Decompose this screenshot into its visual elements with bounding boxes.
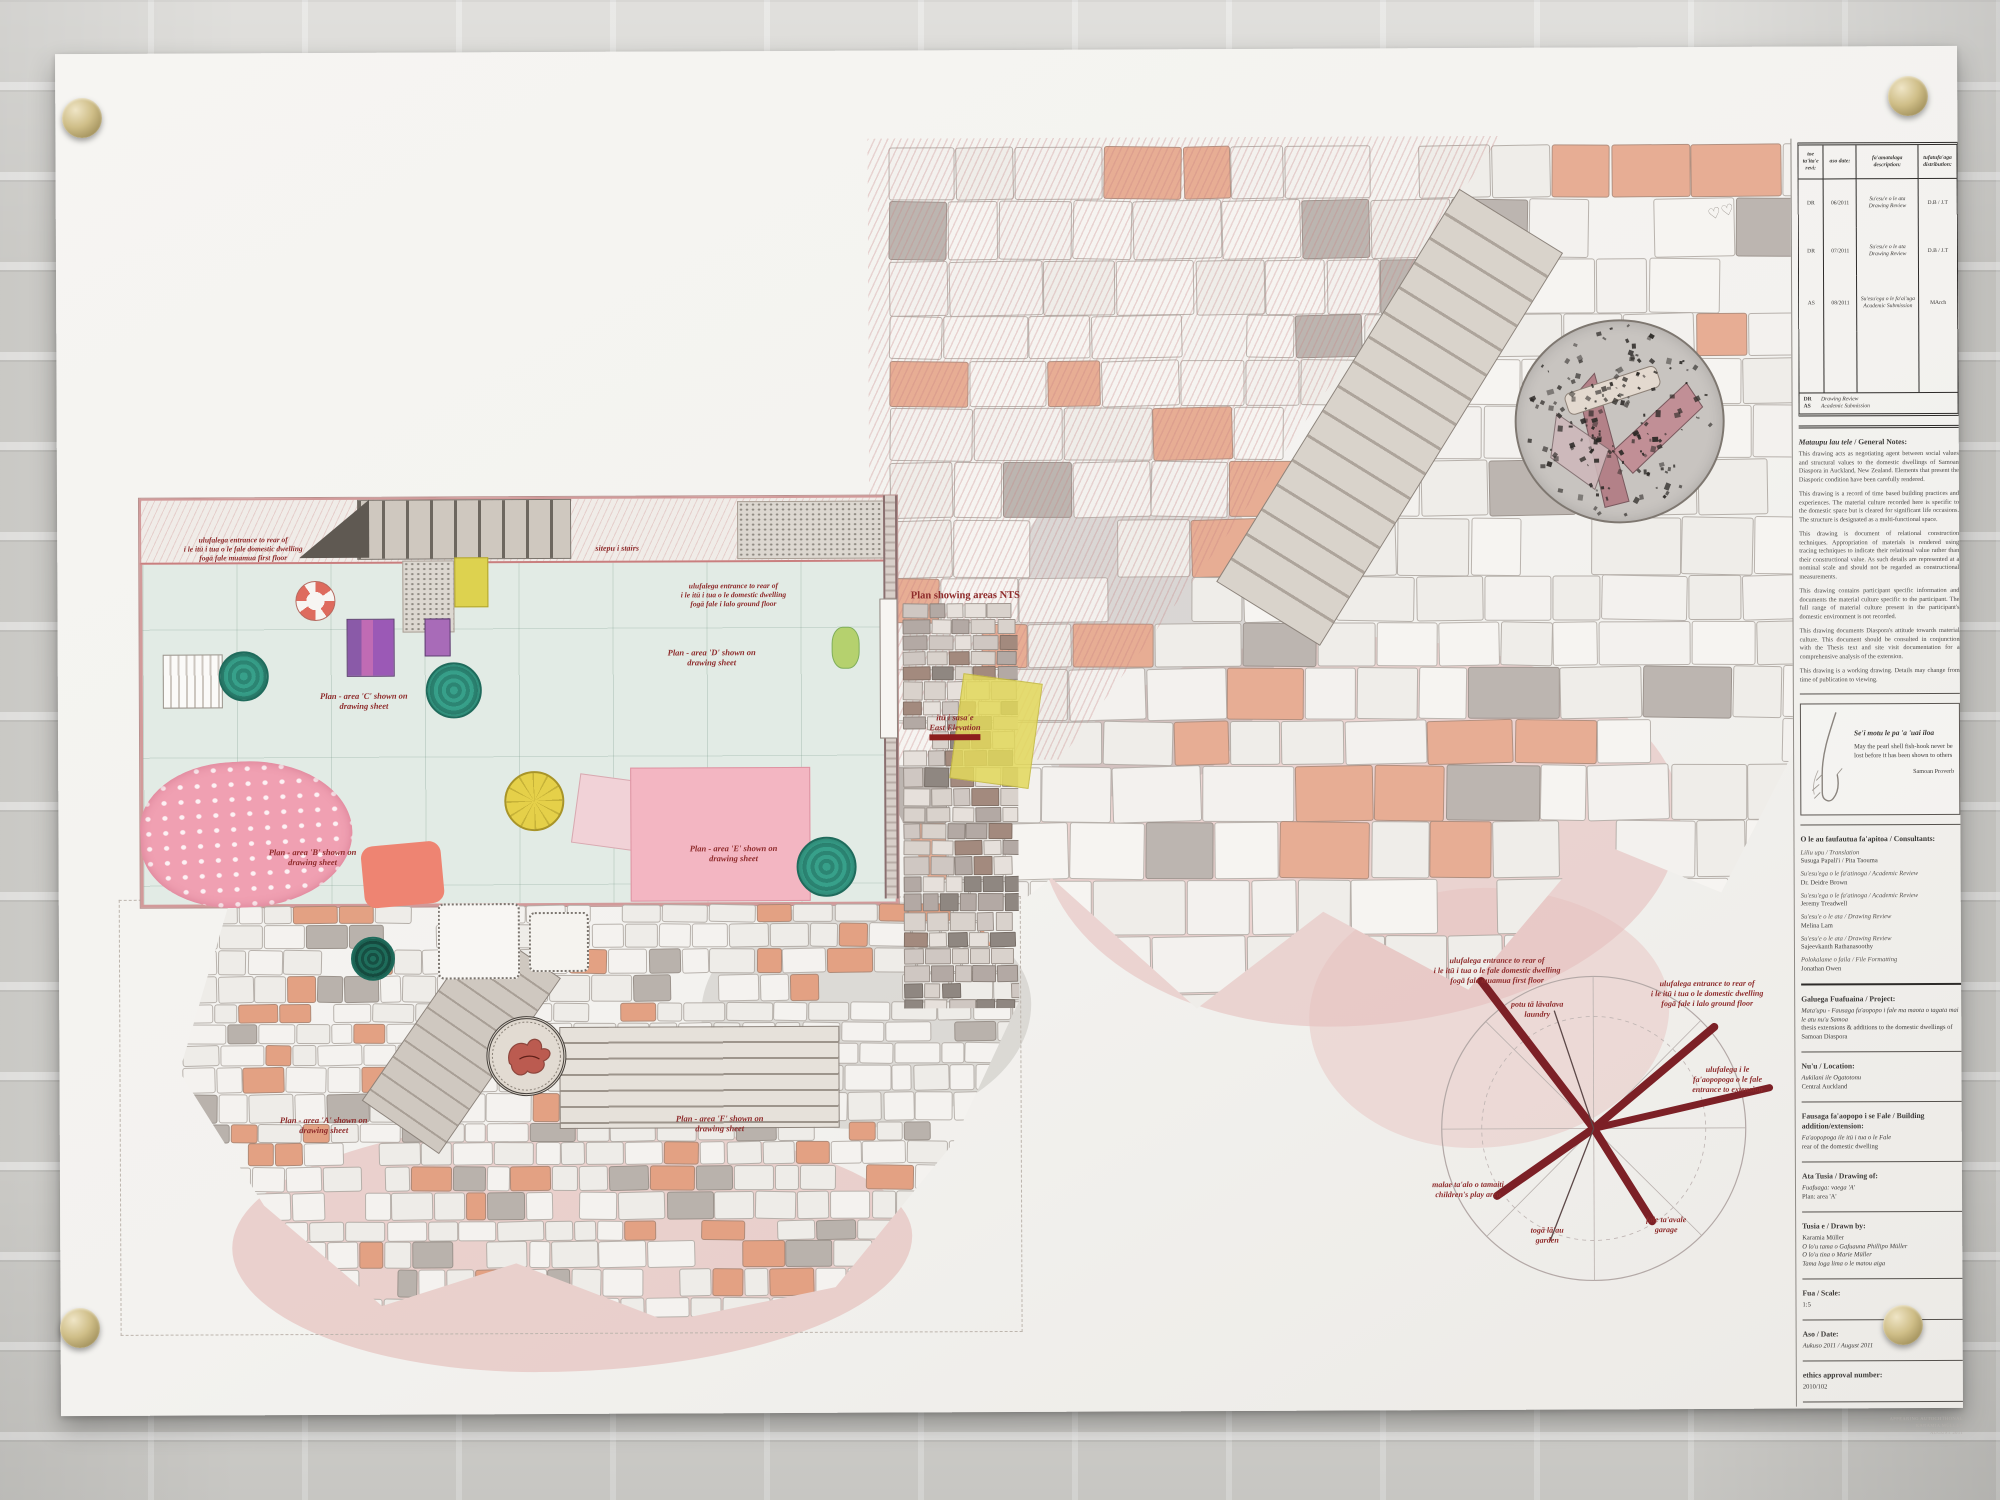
roof-shingle [954, 635, 971, 650]
courtyard-stone [659, 923, 692, 948]
paving-stone [1560, 665, 1643, 719]
roof-shingle [947, 823, 965, 839]
paving-stone [1111, 765, 1202, 824]
speckle-dot [1554, 456, 1559, 461]
roof-shingle [903, 666, 931, 681]
speckle-dot [1704, 394, 1707, 396]
courtyard-stone [827, 948, 873, 973]
info-section: Fua / Scale:1:5 [1802, 1288, 1962, 1311]
courtyard-stone [219, 1094, 248, 1123]
courtyard-stone [529, 1241, 550, 1268]
courtyard-stone [797, 1190, 829, 1219]
courtyard-stone [535, 1142, 560, 1165]
paving-stone [1420, 459, 1488, 517]
courtyard-stone [305, 925, 347, 949]
paving-stone [1587, 763, 1671, 821]
roof-shingle [1002, 839, 1019, 855]
paving-stone [1279, 821, 1370, 879]
courtyard-stone [734, 1165, 774, 1190]
speckle-dot [1528, 439, 1532, 443]
courtyard-stone [598, 1240, 646, 1268]
info-section: Nu'u / Location:Aukilani ile OgatotonuCe… [1801, 1061, 1961, 1092]
courtyard-stone [553, 1002, 589, 1021]
section-divider [1802, 1101, 1962, 1103]
revision-dist: D.B / J.T [1919, 179, 1957, 227]
speckle-dot [1558, 488, 1564, 493]
salmon-cushion [360, 840, 445, 909]
revision-dist: MArch [1919, 275, 1957, 331]
roof-shingle [977, 893, 1003, 911]
courtyard-stone [561, 1142, 585, 1165]
paving-stone [1783, 143, 1795, 196]
courtyard-stone [645, 1297, 689, 1318]
courtyard-stone [252, 1167, 285, 1192]
paving-stone [1146, 822, 1215, 879]
courtyard-stone [591, 975, 633, 1002]
paving-stone [1230, 721, 1280, 765]
paving-stone [1471, 517, 1522, 575]
paving-stone [1514, 719, 1596, 764]
roof-shingle [993, 856, 1012, 875]
roof-shingle [1004, 875, 1019, 892]
paving-stone [1756, 620, 1794, 665]
courtyard-stone [701, 1220, 745, 1240]
bird-emblem [486, 1016, 566, 1096]
revision-desc: Su'esu'ega o le fa'ai'uga Academic Submi… [1857, 275, 1919, 331]
courtyard-stone [777, 1219, 816, 1240]
wardrobe-2 [425, 618, 451, 656]
label-area-f: Plan - area 'F' shown ondrawing sheet [676, 1113, 764, 1134]
roof-shingle [904, 948, 925, 965]
compass-garden: togā lā'augarden [1531, 1226, 1564, 1246]
info-section-heading: Ata Tusia / Drawing of: [1802, 1171, 1962, 1182]
courtyard-stone [950, 1064, 975, 1090]
courtyard-stone [230, 1124, 257, 1143]
shingle-mosaic [899, 600, 1019, 1009]
speckle-dot [1596, 493, 1599, 496]
courtyard-stone [275, 1143, 303, 1167]
photo-of-pinned-drawing: { "scene": { "accent_red": "#8e2b2b", "r… [0, 0, 2000, 1500]
courtyard-stone [411, 1167, 452, 1192]
courtyard-stone [258, 1024, 295, 1044]
revision-spacer [1799, 331, 1825, 392]
paving-stone [1227, 667, 1304, 720]
paving-stone [1552, 621, 1598, 665]
roof-shingle [931, 840, 954, 856]
revision-date: 08/2011 [1824, 275, 1857, 331]
courtyard-stone [510, 1166, 551, 1191]
revision-date: 07/2011 [1824, 227, 1857, 275]
roof-shingle [903, 716, 926, 730]
roof-shingle [927, 651, 948, 665]
roof-shingle [904, 965, 930, 982]
courtyard-stone [624, 924, 657, 948]
courtyard-stone [248, 1144, 274, 1167]
courtyard-stone [465, 1123, 486, 1142]
courtyard-stone [466, 1192, 486, 1220]
roof-shingle [1011, 983, 1020, 998]
compass-laundry: potu tā lāvalavalaundry [1511, 1000, 1564, 1020]
roof-shingle [924, 983, 940, 998]
paving-stone [1553, 576, 1601, 621]
revision-table-header: aso date: [1824, 145, 1857, 179]
speckle-dot [1632, 344, 1636, 349]
round-woven-mat-1 [219, 651, 269, 701]
info-section: ethics approval number:2010/102 [1803, 1370, 1963, 1393]
speckle-dot [1548, 405, 1554, 411]
paving-stone [1681, 516, 1754, 575]
speckle-dot [1594, 400, 1596, 403]
roof-shingle [903, 750, 927, 766]
general-notes-paragraph: This drawing is a working drawing. Detai… [1800, 667, 1960, 685]
roof-shingle [903, 788, 930, 807]
revision-table: toe ta'ita'e revi:aso date:fa'amatalaga … [1797, 142, 1958, 417]
courtyard-stone [291, 1192, 325, 1221]
info-section-line: Central Auckland [1802, 1083, 1962, 1092]
roof-shingle [903, 682, 923, 701]
courtyard-stone [279, 1004, 311, 1023]
courtyard-stone [384, 1242, 411, 1269]
courtyard-stone [841, 1021, 885, 1042]
courtyard-stone [885, 1021, 931, 1042]
courtyard-stone [317, 1044, 362, 1066]
roof-shingle [931, 965, 954, 982]
consultants: O le au faufautua fa'apitoa / Consultant… [1800, 834, 1961, 974]
courtyard-stone [894, 1042, 940, 1063]
courtyard-stone [532, 1093, 560, 1122]
speckle-dot [1635, 354, 1639, 357]
courtyard-stone [664, 1141, 699, 1164]
paving-stone [1690, 143, 1782, 197]
courtyard-stone [726, 1002, 773, 1021]
courtyard-stone [552, 1166, 578, 1191]
revision-spacer [1858, 331, 1920, 392]
roof-shingle [972, 965, 996, 982]
courtyard-stone [850, 1001, 890, 1020]
roof-shingle [946, 603, 963, 618]
speckle-dot [1655, 410, 1661, 418]
compass-play-area: malae ta'alo o tamaitichildren's play ar… [1432, 1180, 1504, 1200]
roof-shingle [995, 912, 1012, 931]
general-notes-heading-samoan: Mataupu lau tele [1799, 437, 1853, 446]
courtyard-stone [620, 1002, 656, 1021]
consultant-name: Melina Lam [1801, 922, 1961, 931]
paving-stone [1601, 574, 1688, 621]
courtyard-stone [387, 1221, 427, 1241]
courtyard-stone [769, 1268, 815, 1297]
lime-items [832, 627, 860, 669]
courtyard-stone [700, 1141, 726, 1164]
revision-desc: Su'esu'e o le ata Drawing Review [1857, 179, 1919, 227]
general-notes-heading-english: General Notes: [1858, 437, 1907, 446]
courtyard-stone [296, 1024, 330, 1044]
roof-shingle [988, 823, 1012, 839]
courtyard-stone [872, 1190, 896, 1218]
courtyard-stone [526, 1192, 553, 1220]
label-plan-nts: Plan showing areas NTS [911, 590, 1020, 603]
courtyard-stone [681, 948, 708, 973]
label-east-elevation: itū i sasa'eEast Elevation [929, 712, 980, 741]
general-notes-heading: Mataupu lau tele / General Notes: [1799, 437, 1959, 448]
speckle-dot [1549, 449, 1552, 451]
courtyard-stone [574, 1220, 597, 1240]
courtyard-stone [709, 948, 755, 973]
paving-stone [1093, 880, 1187, 936]
revision-rev: AS [1799, 275, 1825, 331]
paving-stone [1356, 667, 1418, 720]
roof-shingle [997, 619, 1015, 634]
courtyard-stone [264, 906, 293, 925]
courtyard-stone [393, 950, 421, 975]
paving-stone [1671, 763, 1747, 819]
roof-shingle [952, 619, 970, 634]
speckle-dot [1679, 361, 1683, 365]
courtyard-stone [810, 923, 839, 948]
courtyard-stone [380, 975, 402, 1003]
roof-shingle [955, 965, 972, 982]
speckled-circle-umu [1514, 319, 1725, 524]
info-section-heading: Tusia e / Drawn by: [1802, 1220, 1962, 1231]
roof-shingle [902, 603, 928, 618]
courtyard-stone [497, 1220, 544, 1241]
roof-shingle [972, 788, 999, 806]
roof-shingle [902, 635, 927, 651]
courtyard-stone [293, 906, 338, 925]
courtyard-stone [287, 976, 316, 1003]
paving-stone [1500, 621, 1552, 666]
courtyard-stone [331, 1023, 352, 1044]
paving-stone [1427, 719, 1514, 765]
general-notes-paragraph: This drawing is document of relational c… [1799, 530, 1959, 582]
courtyard-stone [714, 1191, 755, 1219]
revision-legend: DR Drawing ReviewAS Academic Submission [1800, 392, 1958, 414]
paving-stone [1696, 820, 1745, 877]
speckle-dot [1569, 425, 1573, 427]
courtyard-stone [264, 925, 305, 949]
info-section-heading: ethics approval number: [1803, 1370, 1963, 1381]
round-woven-bowl [351, 937, 395, 981]
revision-desc: Su'esu'e o le ata Drawing Review [1857, 227, 1919, 275]
roof-shingle [997, 965, 1018, 982]
roof-shingle [964, 876, 982, 892]
compass-entrance-first-floor: ulufalega entrance to rear ofi le itū i … [1434, 956, 1561, 987]
roof-shingle [964, 603, 986, 618]
roof-shingle [940, 893, 959, 911]
info-section-heading: Galuega Fuafuaina / Project: [1801, 994, 1961, 1005]
info-section-heading: Fausaga fa'aopopo i se Fale / Building a… [1802, 1111, 1962, 1132]
courtyard-stone [816, 1219, 856, 1240]
paving-stone [1642, 665, 1732, 719]
roof-shingle [924, 999, 948, 1008]
section-divider [1803, 1360, 1963, 1362]
paving-stone [1376, 622, 1437, 666]
courtyard-stone [391, 1192, 434, 1221]
courtyard-stone [718, 974, 759, 1002]
magnet-top-left [62, 98, 102, 138]
paving-stone [1468, 666, 1560, 718]
roof-shingle [990, 948, 1013, 964]
stairs-diagonal [299, 500, 369, 558]
courtyard-stone [453, 1166, 486, 1191]
courtyard-stone [323, 1167, 363, 1192]
paving-stone [1416, 576, 1484, 622]
paving-stone [1591, 517, 1681, 575]
speckle-dot [1599, 430, 1602, 432]
courtyard-stone [785, 1240, 832, 1267]
paving-stone [1202, 765, 1294, 821]
roof-shingle [950, 912, 976, 932]
courtyard-stone [796, 1141, 830, 1164]
roof-shingle [929, 932, 947, 947]
speckle-dot [1586, 424, 1588, 426]
paving-stone [1344, 719, 1427, 765]
round-woven-mat-2 [426, 662, 482, 718]
paving-stone [1173, 720, 1229, 765]
info-section-line: Mata'upu - Fausaga fa'aopopo i fale ma m… [1801, 1007, 1961, 1025]
magnet-bottom-left [60, 1308, 100, 1348]
roof-shingle [903, 856, 929, 875]
courtyard-stone [487, 1123, 529, 1142]
info-section-line: rear of the domestic dwelling [1802, 1143, 1962, 1152]
courtyard-stone [283, 950, 322, 975]
courtyard-stone [844, 1064, 891, 1090]
speckle-dot [1589, 410, 1594, 416]
label-area-b: Plan - area 'B' shown ondrawing sheet [269, 847, 357, 868]
courtyard-stone [877, 1121, 903, 1140]
roof-shingle [904, 983, 924, 998]
proverb-box: Se'i motu le pa 'a 'uai iloa May the pea… [1800, 703, 1960, 816]
paving-stone [1742, 357, 1794, 404]
courtyard-stone [603, 1269, 644, 1297]
paving-stone [1597, 719, 1651, 763]
courtyard-stone [309, 1222, 345, 1242]
courtyard-stone [292, 1045, 316, 1066]
section-divider [1801, 1051, 1961, 1053]
paving-stone [1745, 819, 1794, 877]
roof-shingle [942, 983, 961, 999]
courtyard-stone [800, 1165, 837, 1190]
speckle-dot [1652, 437, 1658, 442]
courtyard-stone [755, 1191, 796, 1220]
revision-table-header: toe ta'ita'e revi: [1798, 145, 1823, 179]
info-section: Fausaga fa'aopopo i se Fale / Building a… [1802, 1111, 1962, 1153]
paving-stone [1037, 937, 1096, 994]
courtyard-stone [859, 1042, 893, 1064]
magnet-bottom-right [1883, 1305, 1923, 1345]
speckle-dot [1656, 487, 1658, 489]
roof-shingle [948, 651, 969, 666]
paving-stone [1069, 822, 1145, 880]
roof-shingle [987, 603, 1012, 618]
courtyard-stone [608, 949, 647, 974]
info-section: Tusia e / Drawn by:Karamia MüllerO lo'u … [1802, 1220, 1962, 1269]
roof-shingle [932, 666, 954, 681]
courtyard-stone [793, 904, 833, 922]
fish-hook-sketch [1806, 711, 1848, 807]
courtyard-stone [834, 904, 877, 922]
paving-stone [1374, 764, 1445, 821]
courtyard-stone [597, 1220, 623, 1240]
paving-stone [1155, 623, 1242, 668]
roof-shingle [1002, 807, 1019, 822]
courtyard-stone [586, 1142, 624, 1165]
courtyard-stone [304, 1143, 345, 1167]
courtyard-stone [359, 1242, 383, 1269]
courtyard-stone [757, 904, 793, 923]
courtyard-stone [709, 904, 756, 923]
paving-stone [1688, 575, 1741, 620]
roof-shingle [902, 651, 925, 666]
roof-shingle [990, 932, 1017, 947]
courtyard-stone [216, 1067, 242, 1094]
roof-shingle [952, 807, 975, 822]
revision-date: 06/2011 [1824, 179, 1857, 227]
courtyard-stone [227, 1024, 257, 1044]
info-section: Galuega Fuafuaina / Project:Mata'upu - F… [1801, 994, 1961, 1043]
roof-shingle [953, 788, 971, 807]
consultant-name: Dr. Deidre Brown [1801, 879, 1961, 888]
paving-stone [1418, 666, 1467, 719]
courtyard-stone [316, 976, 343, 1003]
general-notes-paragraph: This drawing is a record of time based b… [1799, 490, 1959, 525]
courtyard-stone [608, 1165, 649, 1191]
roof-shingle [955, 856, 973, 875]
speckle-dot [1649, 439, 1651, 442]
roof-shingle [903, 701, 922, 715]
speckle-dot [1686, 369, 1688, 371]
paving-stone [1304, 667, 1355, 719]
roof-shingle [975, 807, 1001, 822]
speckle-dot [1602, 394, 1604, 397]
stairs [357, 499, 571, 560]
striped-mat [163, 654, 223, 708]
info-section-line: thesis extensions & additions to the dom… [1801, 1024, 1961, 1042]
paving-stone [1351, 879, 1439, 935]
roof-shingle [931, 619, 951, 634]
section-divider [1802, 1161, 1962, 1163]
speckle-dot [1607, 387, 1611, 390]
roof-shingle [999, 634, 1019, 649]
revision-spacer [1825, 331, 1858, 392]
roof-shingle [904, 893, 922, 911]
courtyard-stone [286, 1167, 322, 1193]
courtyard-stone [265, 1045, 291, 1066]
courtyard-stone [762, 1141, 795, 1165]
roof-shingle [903, 840, 930, 856]
courtyard-stone [808, 1002, 849, 1021]
courtyard-stone [941, 1042, 964, 1063]
courtyard-stone [726, 1141, 762, 1165]
wardrobe [347, 619, 395, 677]
roof-shingle [972, 635, 998, 650]
courtyard-stone [579, 1191, 617, 1219]
courtyard-stone [839, 923, 868, 948]
roof-shingle [902, 619, 930, 634]
roof-shingle [927, 807, 951, 822]
roof-shingle [924, 682, 946, 701]
courtyard-stone [865, 1164, 913, 1189]
courtyard-stone [247, 950, 282, 975]
paving-stone [1295, 764, 1374, 821]
paving-stone [1748, 313, 1794, 357]
paving-stone [1429, 821, 1491, 878]
courtyard-stone [712, 1268, 744, 1296]
courtyard-stone [647, 1240, 695, 1268]
courtyard-stone [862, 1140, 907, 1164]
roof-shingle [921, 823, 946, 839]
paving-stone [1754, 516, 1794, 575]
speckle-dot [1612, 445, 1614, 447]
